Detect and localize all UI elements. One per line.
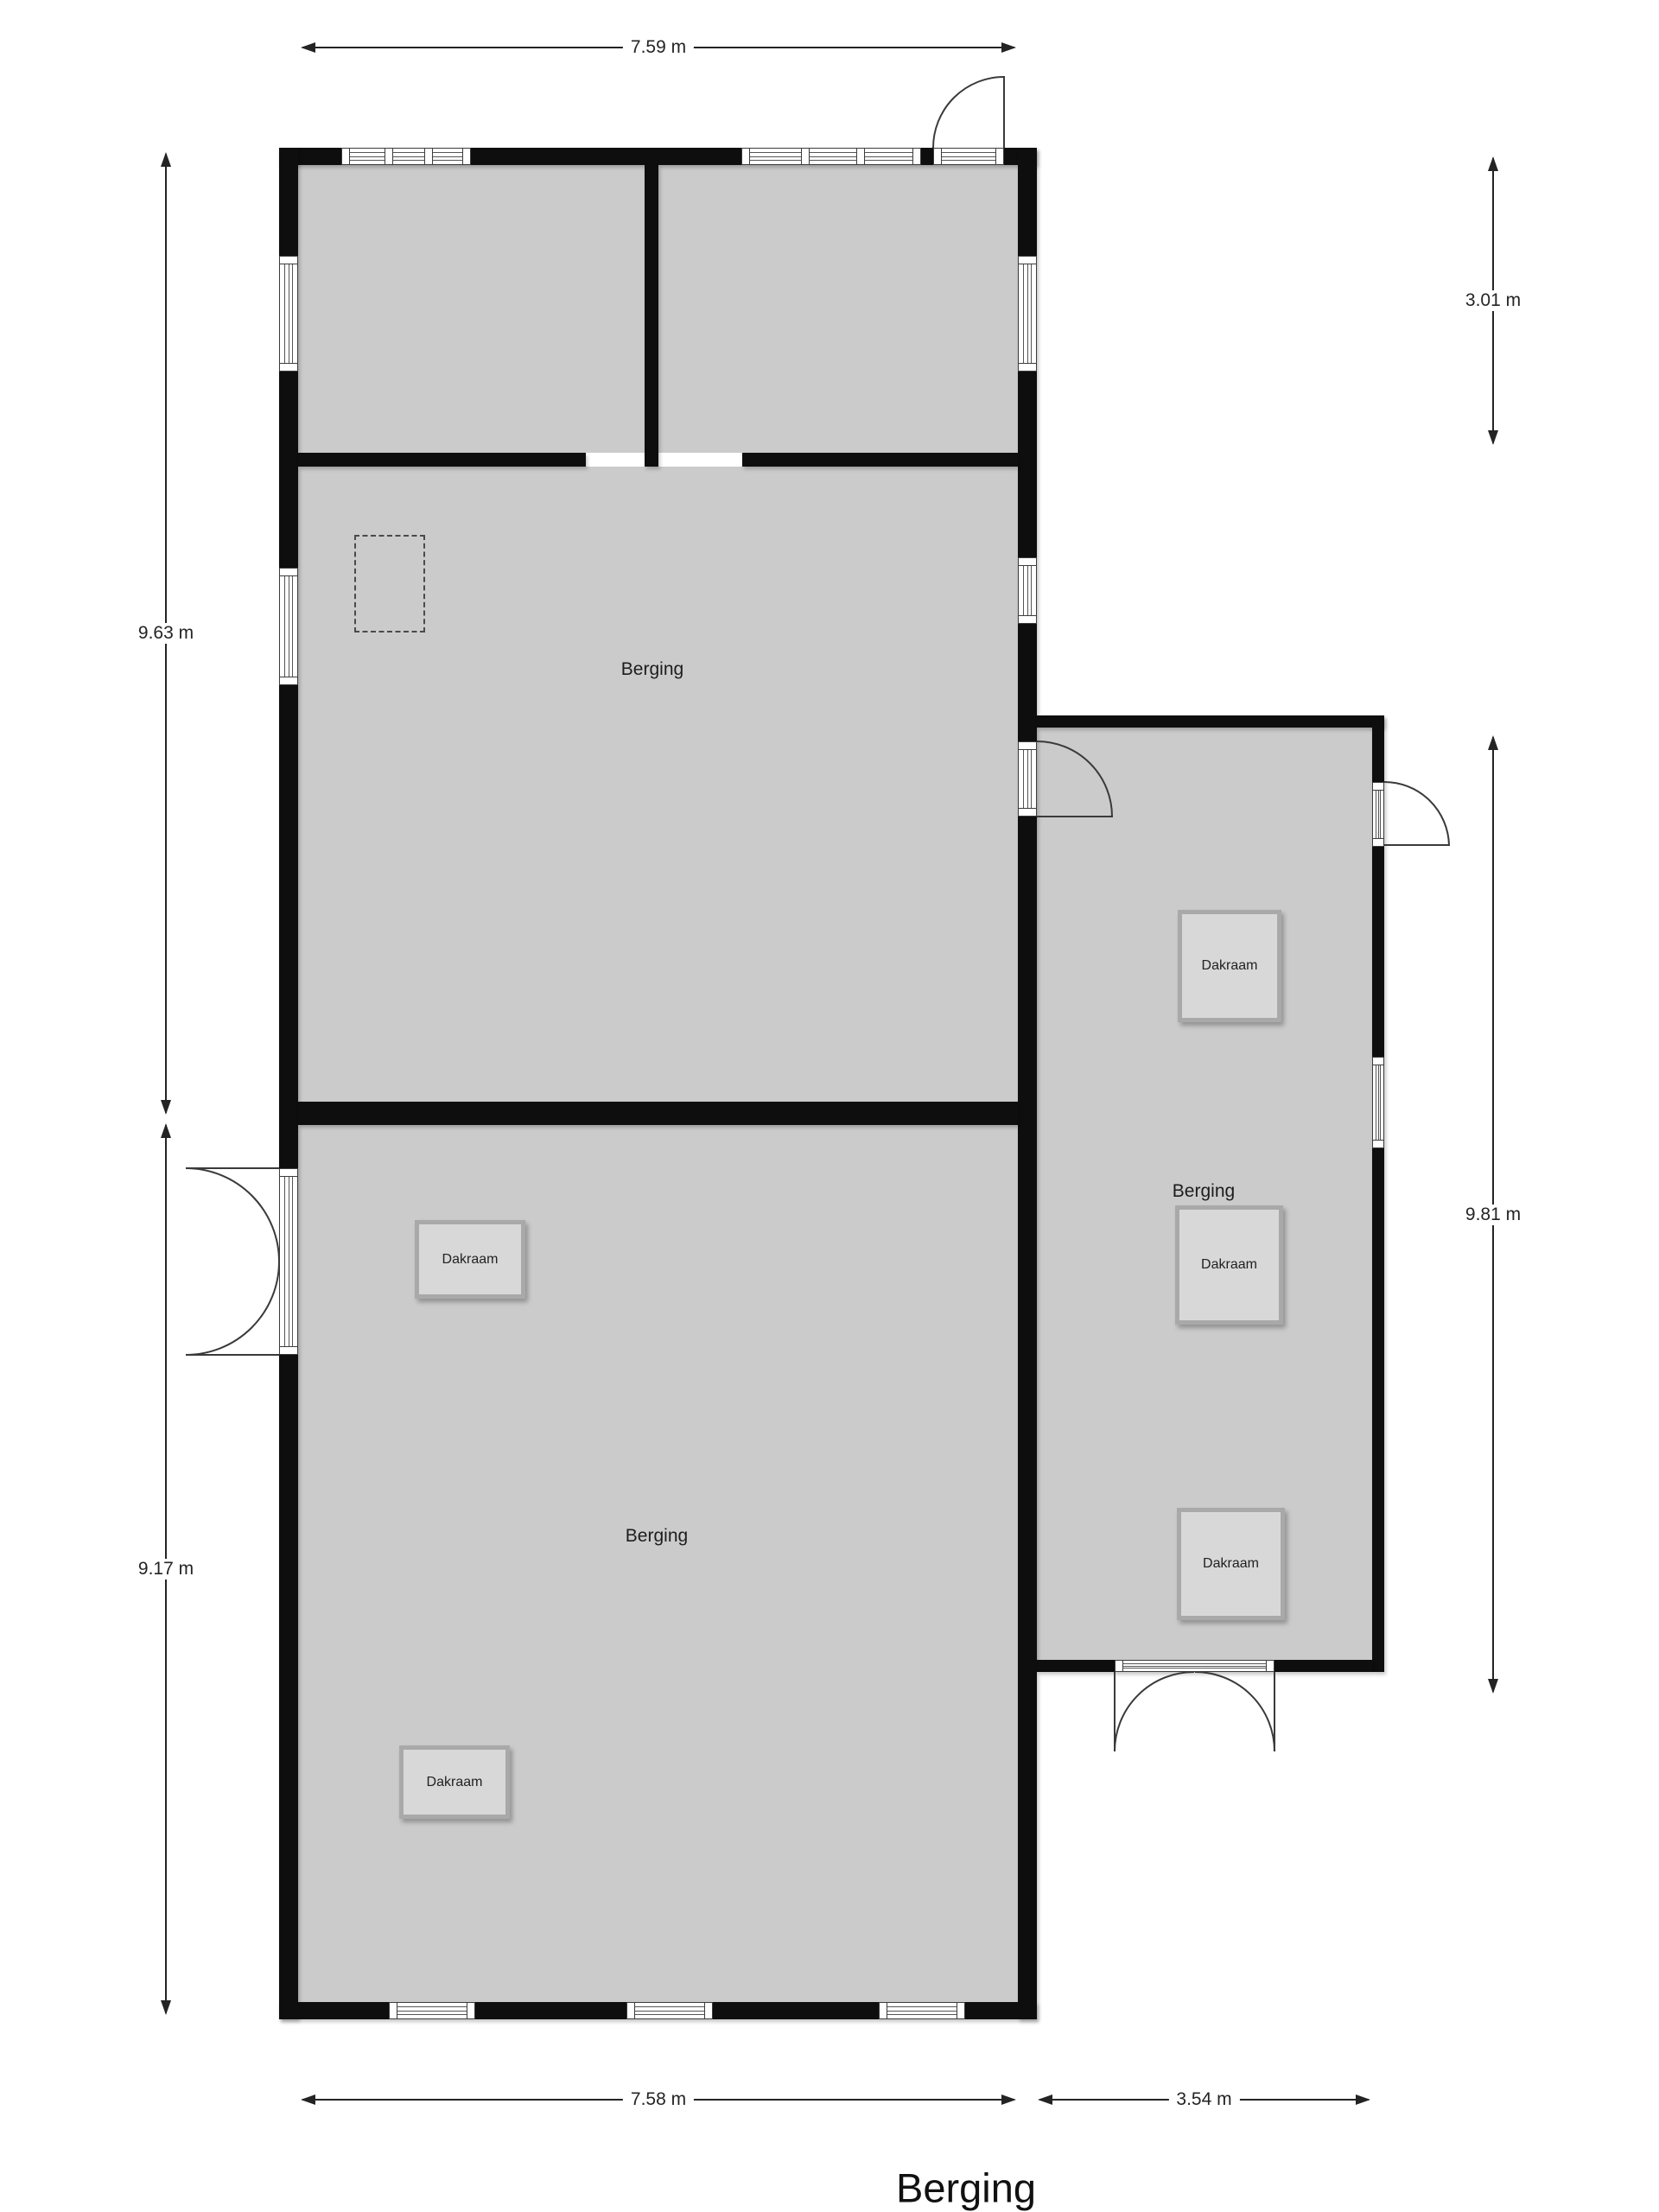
skylight-box: Dakraam xyxy=(1178,910,1281,1022)
arrowhead-left xyxy=(301,2094,315,2105)
dimension-value: 9.63 m xyxy=(130,623,201,644)
skylight-box: Dakraam xyxy=(399,1745,510,1819)
arrowhead-right xyxy=(1001,42,1016,53)
wall-annex-top xyxy=(1037,715,1384,728)
room-label-annex-berging: Berging xyxy=(1173,1181,1235,1202)
arrowhead-up xyxy=(1488,156,1498,171)
arrowhead-down xyxy=(1488,430,1498,445)
arrowhead-right xyxy=(1356,2094,1370,2105)
wall-interior-horizontal-right xyxy=(742,453,1018,467)
dimension-value: 9.81 m xyxy=(1458,1205,1529,1225)
skylight-label: Dakraam xyxy=(1201,1554,1261,1573)
wall-right-main xyxy=(1018,148,1037,2019)
window-bottom-3 xyxy=(879,2002,965,2019)
dimension-value: 3.01 m xyxy=(1458,290,1529,311)
floor-plan: Dakraam Dakraam Dakraam Dakraam Dakraam … xyxy=(0,0,1659,2212)
arrowhead-down xyxy=(161,1100,171,1115)
door-arc-left-double-top xyxy=(186,1168,279,1262)
door-arc-top xyxy=(933,77,1004,148)
wall-left xyxy=(279,148,298,2019)
room-bottom-berging xyxy=(298,1125,1018,2002)
door-arc-annex-bottom-right xyxy=(1195,1672,1274,1751)
window-left-upper-2 xyxy=(279,568,298,685)
arrowhead-right xyxy=(1001,2094,1016,2105)
skylight-box: Dakraam xyxy=(1175,1205,1283,1325)
arrowhead-down xyxy=(1488,1679,1498,1694)
window-mullion xyxy=(801,148,810,165)
room-top-left xyxy=(298,165,645,453)
room-label-bottom-berging: Berging xyxy=(626,1526,688,1547)
window-bottom-2 xyxy=(626,2002,713,2019)
window-mullion xyxy=(856,148,865,165)
window-left-upper-1 xyxy=(279,256,298,372)
arrowhead-up xyxy=(161,1123,171,1138)
arrowhead-up xyxy=(1488,735,1498,750)
wall-interior-horizontal-left xyxy=(298,453,586,467)
dimension-value: 7.58 m xyxy=(623,2089,694,2110)
dimension-value: 7.59 m xyxy=(623,37,694,58)
dimension-value: 9.17 m xyxy=(130,1559,201,1580)
dashed-fixture-outline xyxy=(354,535,425,632)
window-mullion xyxy=(385,148,393,165)
room-label-top-berging: Berging xyxy=(621,659,683,680)
door-arc-left-double-bottom xyxy=(186,1262,279,1355)
door-opening-left-double xyxy=(279,1168,298,1355)
skylight-box: Dakraam xyxy=(1177,1508,1285,1620)
room-top-right xyxy=(658,165,1018,453)
skylight-label: Dakraam xyxy=(1199,1255,1259,1274)
skylight-label: Dakraam xyxy=(441,1250,500,1269)
door-arc-annex-right xyxy=(1384,782,1449,845)
skylight-label: Dakraam xyxy=(1200,957,1260,976)
wall-middle-divider xyxy=(298,1102,1018,1125)
wall-annex-right xyxy=(1372,715,1384,1672)
skylight-label: Dakraam xyxy=(425,1773,485,1792)
window-right-upper-2 xyxy=(1018,557,1037,624)
skylight-box: Dakraam xyxy=(415,1220,525,1299)
arrowhead-left xyxy=(301,42,315,53)
door-opening-annex-right xyxy=(1372,782,1384,847)
door-opening-annex-bottom-double xyxy=(1115,1660,1274,1672)
window-top-left xyxy=(341,148,471,165)
window-mullion xyxy=(424,148,433,165)
arrowhead-up xyxy=(161,152,171,167)
arrowhead-down xyxy=(161,2000,171,2015)
wall-interior-vertical xyxy=(645,165,658,467)
window-top-right xyxy=(741,148,921,165)
door-opening-middle xyxy=(1018,741,1037,817)
window-bottom-1 xyxy=(389,2002,475,2019)
page-title: Berging xyxy=(896,2164,1036,2212)
door-arc-annex-bottom-left xyxy=(1115,1672,1194,1751)
window-right-upper-1 xyxy=(1018,256,1037,372)
dimension-value: 3.54 m xyxy=(1168,2089,1239,2110)
arrowhead-left xyxy=(1038,2094,1052,2105)
window-annex-right xyxy=(1372,1057,1384,1148)
door-opening-top xyxy=(933,148,1004,165)
